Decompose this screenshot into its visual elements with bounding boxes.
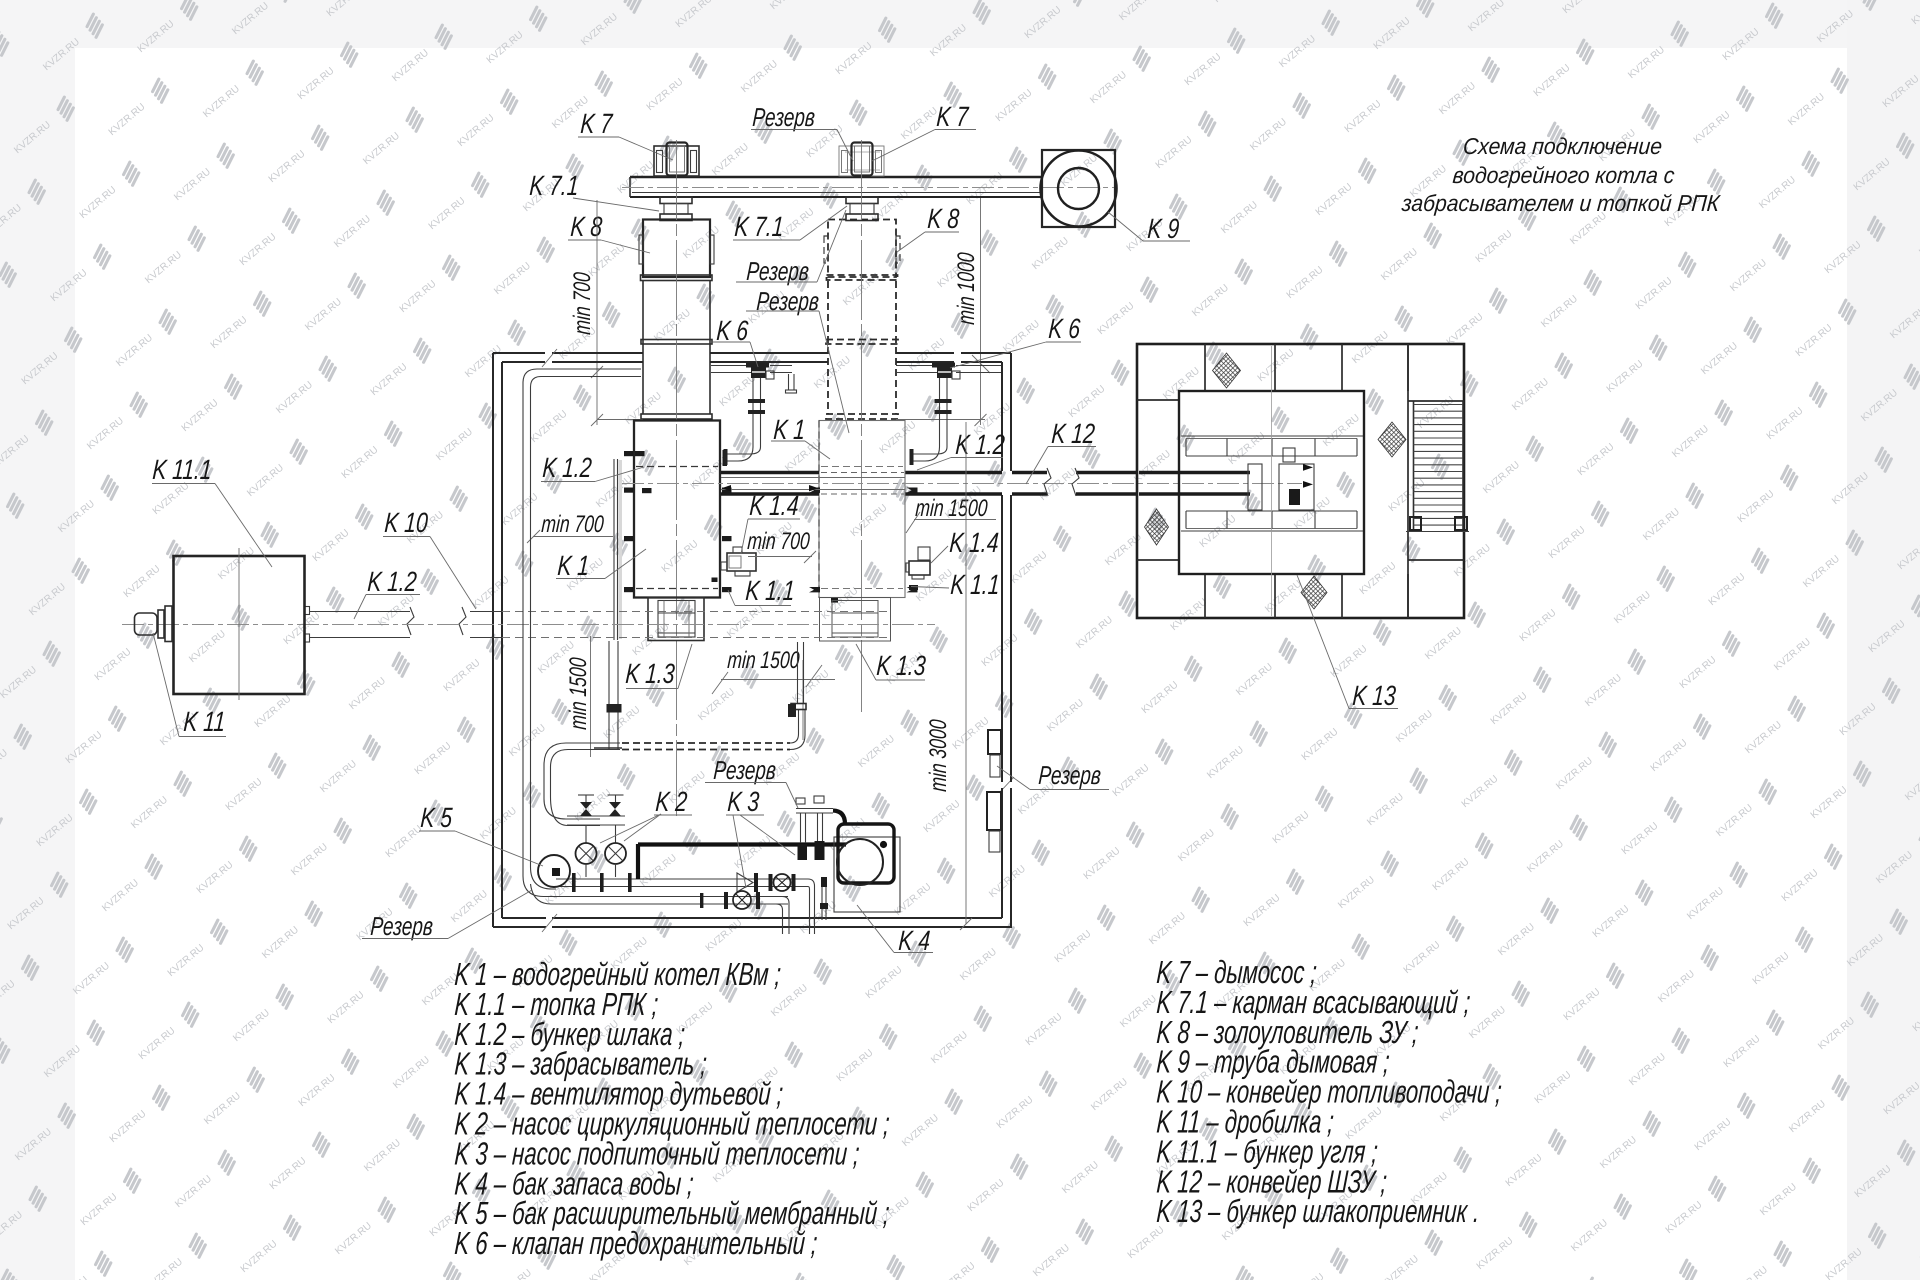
svg-text:K 7: K 7 <box>936 102 971 133</box>
svg-text:K 3: K 3 <box>727 787 761 818</box>
svg-text:K 1: K 1 <box>557 551 591 582</box>
svg-text:K 13: K 13 <box>1352 681 1397 712</box>
svg-text:Резерв: Резерв <box>752 102 816 132</box>
svg-text:водогрейного котла с: водогрейного котла с <box>1452 162 1676 188</box>
svg-text:K 8: K 8 <box>927 204 961 235</box>
svg-text:K 1.2: K 1.2 <box>542 453 593 484</box>
svg-text:забрасывателем и топкой РПК: забрасывателем и топкой РПК <box>1400 190 1722 216</box>
svg-text:K 1.4: K 1.4 <box>949 528 1000 559</box>
svg-text:K 6 – клапан предохранительны: K 6 – клапан предохранительный ; <box>454 1225 819 1261</box>
svg-text:Резерв: Резерв <box>713 755 777 785</box>
svg-text:K 1.4: K 1.4 <box>749 491 800 522</box>
svg-text:K 1.3: K 1.3 <box>625 659 676 690</box>
svg-text:K 12: K 12 <box>1051 419 1096 450</box>
svg-text:Резерв: Резерв <box>1038 760 1102 790</box>
svg-text:K 1.1: K 1.1 <box>950 570 1001 601</box>
svg-text:Схема подключение: Схема подключение <box>1462 133 1663 159</box>
svg-text:min 700: min 700 <box>541 511 605 537</box>
svg-text:K 10: K 10 <box>384 508 429 539</box>
svg-text:K 7.1: K 7.1 <box>529 171 580 202</box>
svg-text:Резерв: Резерв <box>370 911 434 941</box>
svg-text:K 7: K 7 <box>580 109 615 140</box>
svg-text:K 1.3: K 1.3 <box>876 651 927 682</box>
svg-text:min 1500: min 1500 <box>727 647 801 673</box>
svg-text:min 1500: min 1500 <box>565 656 591 730</box>
svg-text:min 1500: min 1500 <box>915 495 989 521</box>
svg-text:K 1.1: K 1.1 <box>745 576 796 607</box>
svg-text:K 1.2: K 1.2 <box>955 430 1006 461</box>
svg-text:K 8: K 8 <box>570 212 604 243</box>
svg-text:Резерв: Резерв <box>746 256 810 286</box>
svg-text:min 700: min 700 <box>569 271 595 335</box>
svg-text:K 13 – бункер шлакоприемник .: K 13 – бункер шлакоприемник . <box>1156 1193 1481 1229</box>
svg-text:K 2: K 2 <box>655 787 689 818</box>
svg-text:K 11: K 11 <box>183 707 227 738</box>
svg-text:min 3000: min 3000 <box>925 718 951 792</box>
svg-text:K 9: K 9 <box>1147 214 1181 245</box>
svg-text:min 700: min 700 <box>747 528 811 554</box>
svg-text:min 1000: min 1000 <box>953 251 979 325</box>
svg-text:K 11.1: K 11.1 <box>152 455 213 486</box>
svg-text:K 7.1: K 7.1 <box>734 212 785 243</box>
svg-text:K 5: K 5 <box>420 803 454 834</box>
svg-text:K 6: K 6 <box>1048 314 1082 345</box>
svg-text:K 1.2: K 1.2 <box>367 567 418 598</box>
